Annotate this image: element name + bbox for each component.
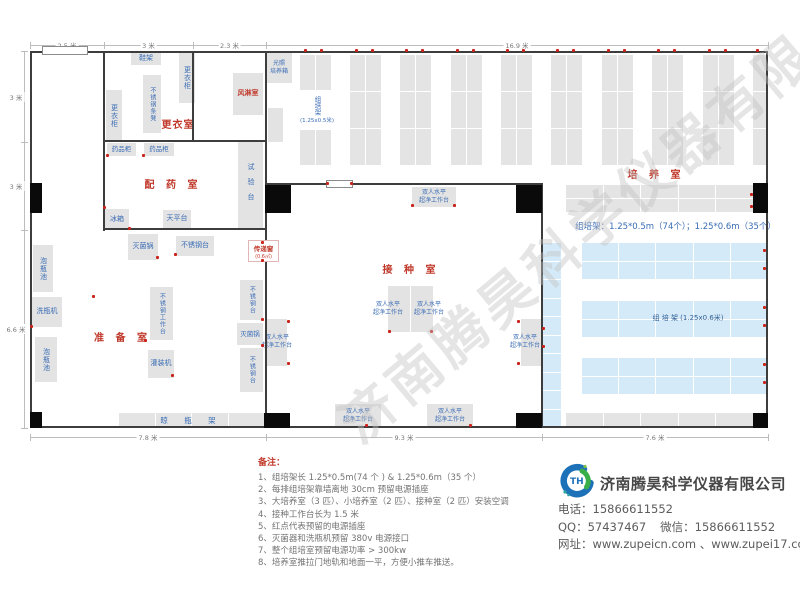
note-item: 4、接种工作台长为 1.5 米 <box>258 509 556 521</box>
phone-value: 15866611552 <box>593 502 673 516</box>
culture-rack <box>566 413 753 427</box>
dimension-label: 3 米 <box>140 40 157 50</box>
company-name: 济南腾昊科学仪器有限公司 <box>600 473 786 494</box>
power-outlet-dot <box>174 253 177 256</box>
dimension-line <box>24 51 25 428</box>
rack-size-note-vertical: 组培架(1.25x0.5米) <box>297 90 337 130</box>
note-item: 7、整个组培室预留电源功率 > 300kw <box>258 545 556 557</box>
power-outlet-dot <box>472 49 475 52</box>
locker: 更衣柜 <box>106 90 122 142</box>
wechat-value: 15866611552 <box>695 520 775 534</box>
power-outlet-dot <box>421 49 424 52</box>
power-outlet-dot <box>144 339 147 342</box>
power-outlet-dot <box>724 49 727 52</box>
power-outlet-dot <box>430 330 433 333</box>
culture-rack <box>501 55 532 165</box>
website-value: www.zupeicn.com 、www.zupei17.com <box>593 537 800 551</box>
dimension-tick <box>21 428 28 429</box>
dimension-label: 3 米 <box>8 181 25 191</box>
website-label: 网址： <box>558 537 593 551</box>
structural-column <box>30 183 42 213</box>
power-outlet-dot <box>92 295 95 298</box>
power-outlet-dot <box>517 362 520 365</box>
power-outlet-dot <box>388 330 391 333</box>
culture-rack: 晾 瓶 架 <box>119 413 264 427</box>
room-label-preparation: 准 备 室 <box>85 329 160 343</box>
dimension-label: 7.8 米 <box>137 432 160 442</box>
clean-bench-label: 双人水平 超净工作台 <box>412 300 446 318</box>
note-item: 2、每排组培架靠墙离地 30cm 预留电源插座 <box>258 484 556 496</box>
culture-rack <box>350 55 381 165</box>
power-outlet-dot <box>304 49 307 52</box>
notes-list: 1、组培架长 1.25*0.5m(74 个 ) & 1.25*0.6m（35 个… <box>258 472 556 570</box>
room-label-dispensing: 配 药 室 <box>138 176 208 190</box>
notes-title: 备注： <box>258 455 556 468</box>
door-opening <box>42 46 88 55</box>
company-logo-icon: TH <box>557 462 595 500</box>
dimension-tick <box>266 42 267 49</box>
power-outlet-dot <box>320 49 323 52</box>
notes-section: 备注： 1、组培架长 1.25*0.5m(74 个 ) & 1.25*0.6m（… <box>258 455 556 570</box>
culture-rack <box>551 55 582 165</box>
svg-text:TH: TH <box>570 477 584 487</box>
power-outlet-dot <box>156 256 159 259</box>
rack-spec-text: 组培架：1.25*0.5m（74个）；1.25*0.6m（35个） <box>568 219 783 232</box>
power-outlet-dot <box>287 362 290 365</box>
company-contacts: 电话：15866611552 QQ：57437467微信：15866611552… <box>558 501 793 554</box>
bottle-soak-pool: 泡瓶池 <box>35 337 57 382</box>
power-outlet-dot <box>405 49 408 52</box>
dimension-tick <box>104 42 105 49</box>
power-outlet-dot <box>750 193 753 196</box>
power-outlet-dot <box>673 49 676 52</box>
power-outlet-dot <box>607 49 610 52</box>
culture-rack <box>566 185 753 212</box>
sterilizer-pot: 灭菌锅 <box>128 234 158 260</box>
note-item: 3、大培养室（3 匹）、小培养室（2 匹）、接种室（2 匹）安装空调 <box>258 496 556 508</box>
power-outlet-dot <box>657 49 660 52</box>
room-label-inoculation: 接 种 室 <box>375 261 447 275</box>
power-outlet-dot <box>763 306 766 309</box>
power-outlet-dot <box>411 204 414 207</box>
wechat-label: 微信： <box>660 520 695 534</box>
dimension-tick <box>768 42 769 49</box>
power-outlet-dot <box>708 49 711 52</box>
wall <box>192 51 194 142</box>
clean-bench: 双人水平 超净工作台 <box>412 187 456 207</box>
light-incubator: 光照 培养箱 <box>266 53 292 83</box>
floor-plan-drawing: 晾 瓶 架鞋架更衣柜不锈钢条凳更衣柜风淋室光照 培养箱药品柜药品柜试验台冰箱天平… <box>0 0 800 450</box>
power-outlet-dot <box>506 49 509 52</box>
culture-rack <box>400 55 431 165</box>
wall <box>266 183 543 185</box>
room-label-culture: 培 养 室 <box>620 166 692 180</box>
gray-box <box>268 108 283 142</box>
note-item: 8、培养室推拉门地轨和地面一平，方便小推车推送。 <box>258 557 556 569</box>
qq-value: 57437467 <box>588 520 647 534</box>
website-row: 网址：www.zupeicn.com 、www.zupei17.com <box>558 536 793 554</box>
culture-rack <box>753 55 767 165</box>
structural-column <box>265 185 291 213</box>
power-outlet-dot <box>763 381 766 384</box>
power-outlet-dot <box>623 49 626 52</box>
power-outlet-dot <box>763 249 766 252</box>
bottle-washer: 洗瓶机 <box>32 297 62 327</box>
structural-column <box>30 412 42 428</box>
power-outlet-dot <box>350 182 353 185</box>
power-outlet-dot <box>355 49 358 52</box>
phone-label: 电话： <box>558 502 593 516</box>
power-outlet-dot <box>261 344 264 347</box>
power-outlet-dot <box>103 206 106 209</box>
air-shower: 风淋室 <box>233 73 263 115</box>
culture-rack <box>703 55 734 165</box>
clean-bench-label: 双人水平 超净工作台 <box>371 300 405 318</box>
power-outlet-dot <box>30 325 33 328</box>
power-outlet-dot <box>756 49 759 52</box>
power-outlet-dot <box>326 182 329 185</box>
fridge: 冰箱 <box>105 209 129 230</box>
dimension-tick <box>30 434 31 441</box>
power-outlet-dot <box>763 267 766 270</box>
dimension-label: 6.6 米 <box>5 324 28 334</box>
test-bench: 试验台 <box>238 140 263 230</box>
dimension-tick <box>193 42 194 49</box>
dimension-label: 7.6 米 <box>644 432 667 442</box>
stainless-table: 不锈钢台 <box>240 348 263 392</box>
clean-bench: 双人水平 超净工作台 <box>427 404 473 427</box>
note-item: 1、组培架长 1.25*0.5m(74 个 ) & 1.25*0.6m（35 个… <box>258 472 556 484</box>
qq-label: QQ： <box>558 520 588 534</box>
blue-rack-label: 组 培 架 (1.25x0.6米) <box>612 311 764 325</box>
power-outlet-dot <box>453 204 456 207</box>
wall <box>766 51 768 428</box>
dimension-tick <box>21 142 28 143</box>
medicine-cabinet: 药品柜 <box>107 143 136 156</box>
power-outlet-dot <box>556 49 559 52</box>
structural-column <box>753 413 768 428</box>
power-outlet-dot <box>287 320 290 323</box>
power-outlet-dot <box>365 424 368 427</box>
power-outlet-dot <box>763 324 766 327</box>
shoe-rack: 鞋架 <box>131 53 161 65</box>
wall <box>541 184 543 428</box>
dimension-tick <box>542 434 543 441</box>
note-item: 6、灭菌器和洗瓶机预留 380v 电源接口 <box>258 533 556 545</box>
power-outlet-dot <box>763 363 766 366</box>
dimension-tick <box>21 51 28 52</box>
dimension-label: 3 米 <box>8 92 25 102</box>
power-outlet-dot <box>128 227 131 230</box>
power-outlet-dot <box>750 205 753 208</box>
dimension-label: 2.3 米 <box>218 40 241 50</box>
wall <box>104 140 266 142</box>
power-outlet-dot <box>517 320 520 323</box>
power-outlet-dot <box>142 154 145 157</box>
clean-bench: 双人水平 超净工作台 <box>335 404 381 427</box>
dimension-tick <box>768 434 769 441</box>
power-outlet-dot <box>261 241 264 244</box>
qq-wechat-row: QQ：57437467微信：15866611552 <box>558 519 793 537</box>
structural-column <box>516 185 542 213</box>
structural-column <box>753 183 768 213</box>
power-outlet-dot <box>456 49 459 52</box>
culture-rack <box>602 55 633 165</box>
power-outlet-dot <box>542 327 545 330</box>
culture-rack <box>652 55 683 165</box>
floor-plan-page: 晾 瓶 架鞋架更衣柜不锈钢条凳更衣柜风淋室光照 培养箱药品柜药品柜试验台冰箱天平… <box>0 0 800 600</box>
culture-rack <box>541 243 561 427</box>
dimension-label: 9.3 米 <box>393 432 416 442</box>
clean-bench-label: 双人水平 超净工作台 <box>507 333 543 351</box>
note-item: 5、红点代表预留的电源插座 <box>258 521 556 533</box>
structural-column <box>264 413 290 428</box>
power-outlet-dot <box>522 49 525 52</box>
power-outlet-dot <box>171 374 174 377</box>
power-outlet-dot <box>261 318 264 321</box>
medicine-cabinet: 药品柜 <box>144 143 174 156</box>
dimension-tick <box>30 42 31 49</box>
wall <box>30 426 768 428</box>
bottle-soak-pool: 泡瓶池 <box>33 245 53 292</box>
power-outlet-dot <box>542 345 545 348</box>
power-outlet-dot <box>261 259 264 262</box>
stainless-table: 不锈钢台 <box>240 280 263 320</box>
culture-rack <box>582 243 767 279</box>
phone-row: 电话：15866611552 <box>558 501 793 519</box>
structural-column <box>516 413 542 428</box>
culture-rack <box>451 55 482 165</box>
balance-table: 天平台 <box>163 210 191 228</box>
power-outlet-dot <box>572 49 575 52</box>
culture-rack <box>582 358 767 394</box>
power-outlet-dot <box>371 49 374 52</box>
wall <box>30 51 32 428</box>
dimension-tick <box>21 230 28 231</box>
door-opening <box>326 180 353 188</box>
stainless-table: 不锈钢台 <box>176 236 214 256</box>
dimension-tick <box>266 434 267 441</box>
power-outlet-dot <box>469 424 472 427</box>
power-outlet-dot <box>106 154 109 157</box>
